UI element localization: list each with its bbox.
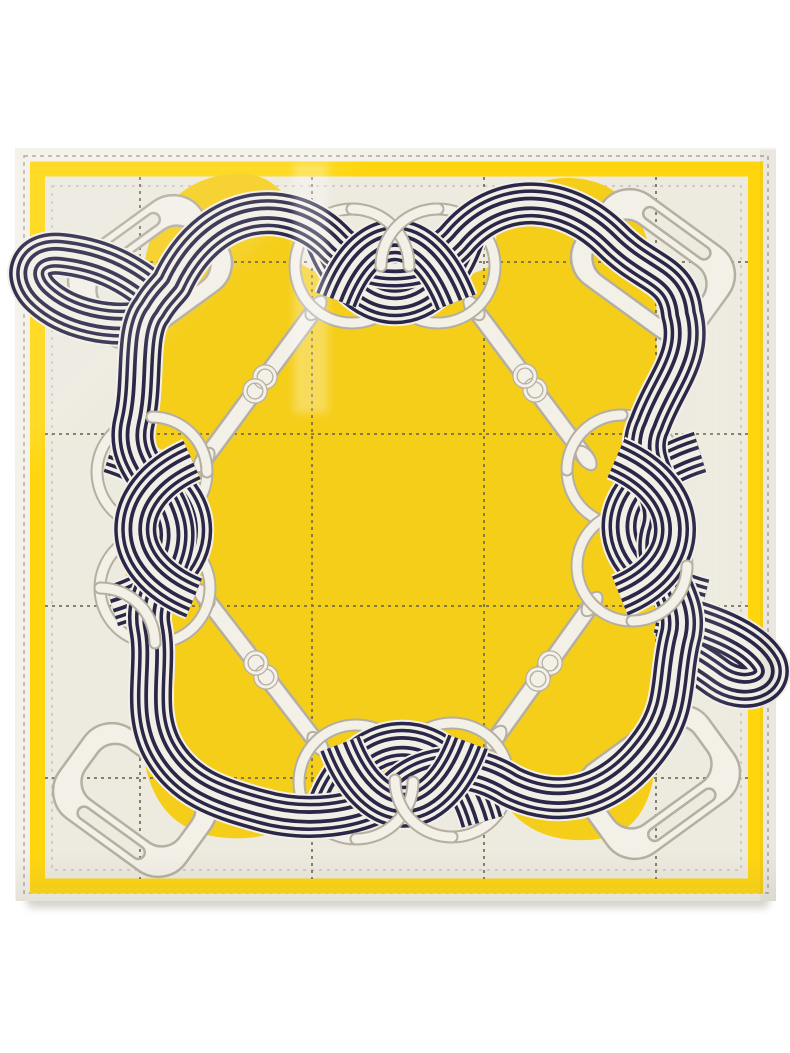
scarf-photo: [0, 0, 790, 1053]
scarf-product-photo: [0, 0, 790, 1053]
